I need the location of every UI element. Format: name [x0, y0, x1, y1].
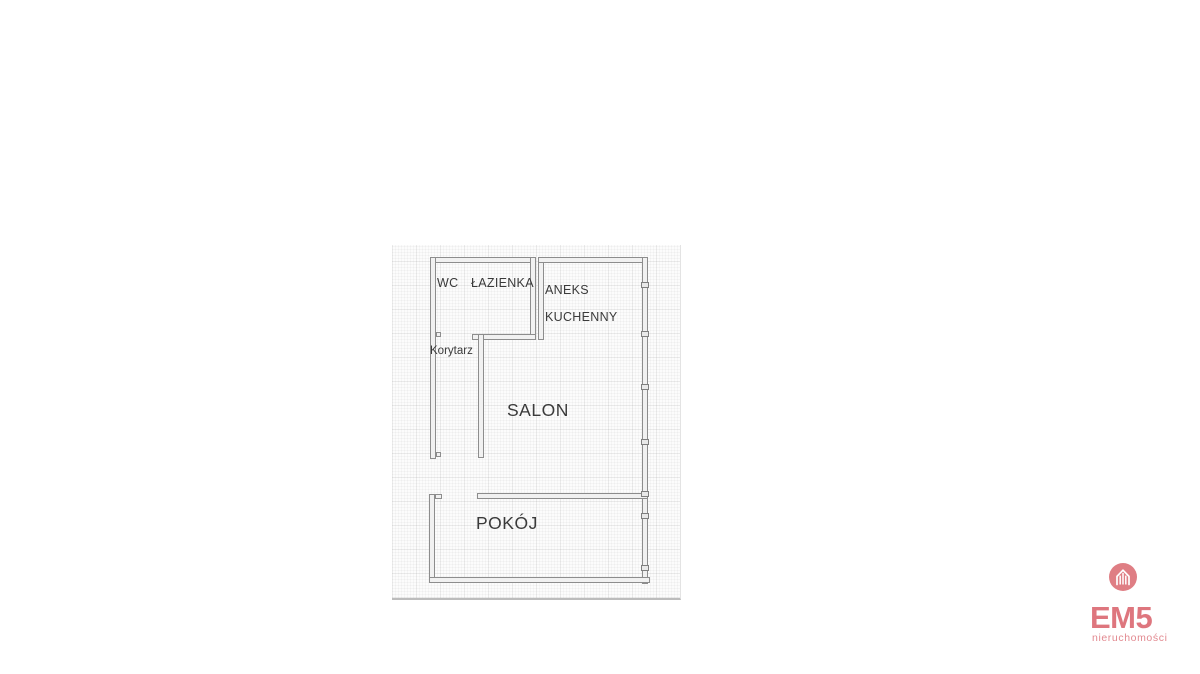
wall-pokoj-left-tab: [435, 494, 442, 499]
wall-joint: [641, 282, 649, 288]
room-label-wc: WC: [437, 277, 458, 290]
wall-salon-left: [478, 334, 484, 458]
wall-outer-bottom: [429, 577, 650, 583]
wall-pokoj-left: [429, 494, 435, 583]
wall-left-tab-lower: [436, 452, 441, 457]
logo-name: EM5: [1090, 602, 1152, 633]
room-label-korytarz: Korytarz: [430, 346, 473, 358]
house-buildings-icon: [1109, 563, 1137, 591]
wall-outer-right: [642, 257, 648, 584]
em5-logo: EM5 nieruchomości: [1085, 558, 1195, 658]
wall-joint: [641, 565, 649, 571]
room-label-aneks-line1: ANEKS: [545, 284, 589, 297]
wall-joint: [641, 491, 649, 497]
wall-bathroom-right: [530, 257, 536, 340]
wall-kitchen-left: [538, 257, 544, 340]
wall-joint: [641, 513, 649, 519]
wall-joint: [641, 439, 649, 445]
wall-joint: [641, 384, 649, 390]
wall-left-tab-upper: [436, 332, 441, 337]
wall-pokoj-top: [477, 493, 648, 499]
room-label-aneks-line2: KUCHENNY: [545, 311, 618, 324]
room-label-lazienka: ŁAZIENKA: [471, 277, 534, 290]
wall-joint: [641, 331, 649, 337]
room-label-pokoj: POKÓJ: [476, 515, 538, 533]
logo-subtitle: nieruchomości: [1092, 633, 1168, 644]
wall-bathroom-top: [430, 257, 536, 263]
room-label-salon: SALON: [507, 402, 569, 420]
floor-plan: WC ŁAZIENKA ANEKS KUCHENNY Korytarz SALO…: [392, 245, 681, 600]
wall-left-upper: [430, 257, 436, 459]
page-canvas: WC ŁAZIENKA ANEKS KUCHENNY Korytarz SALO…: [0, 0, 1200, 674]
wall-top-main: [538, 257, 648, 263]
